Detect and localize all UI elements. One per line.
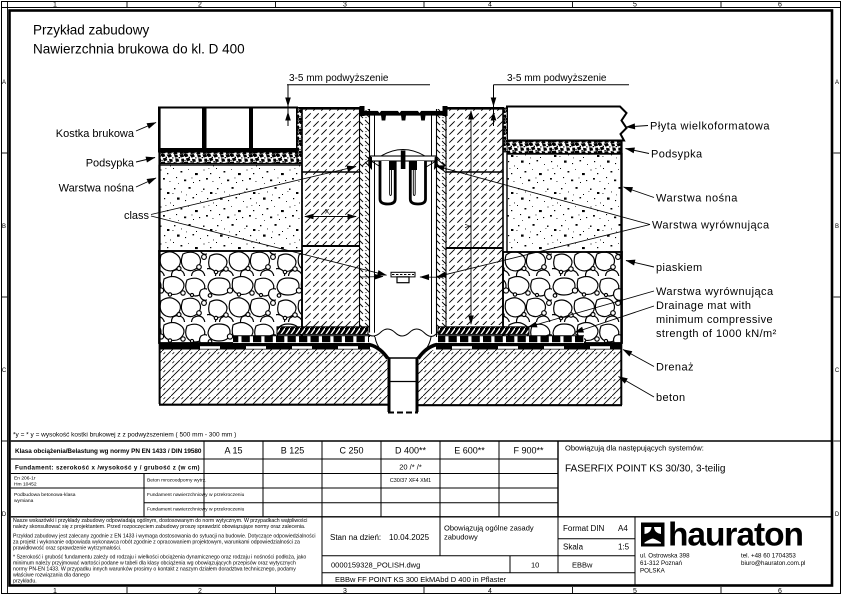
svg-text:A: A	[2, 80, 6, 86]
svg-text:D: D	[2, 512, 7, 518]
svg-text:EBBw: EBBw	[572, 561, 593, 570]
svg-text:5: 5	[633, 2, 637, 9]
svg-text:Drainage mat with: Drainage mat with	[656, 300, 751, 312]
svg-text:ul. Ostrowska 398: ul. Ostrowska 398	[640, 553, 690, 560]
svg-text:wymiana: wymiana	[14, 498, 34, 504]
svg-text:Obowiązują dla następujących s: Obowiązują dla następujących systemów:	[565, 444, 704, 453]
svg-text:hauraton: hauraton	[668, 517, 803, 554]
svg-text:D 400**: D 400**	[395, 446, 427, 456]
svg-text:3: 3	[343, 2, 347, 9]
svg-text:B: B	[2, 224, 6, 230]
svg-text:strength of 1000 kN/m²: strength of 1000 kN/m²	[656, 328, 777, 340]
svg-text:Klasa obciążenia/Belastung wg: Klasa obciążenia/Belastung wg normy PN E…	[15, 448, 202, 455]
svg-text:Drenaż: Drenaż	[656, 362, 694, 374]
svg-text:EBBw FF POINT KS 300 EkMAbd: EBBw FF POINT KS 300 EkMAbd D 400 in Pfl…	[335, 575, 507, 584]
svg-text:Warstwa nośna: Warstwa nośna	[59, 183, 135, 195]
svg-text:Hm 10452: Hm 10452	[14, 482, 37, 488]
svg-text:1:5: 1:5	[618, 543, 630, 552]
svg-text:A: A	[835, 80, 839, 86]
svg-text:3-5 mm podwyższenie: 3-5 mm podwyższenie	[289, 73, 389, 84]
svg-text:biuro@hauraton.com.pl: biuro@hauraton.com.pl	[741, 560, 805, 567]
svg-text:Podsypka: Podsypka	[651, 149, 703, 161]
svg-text:Beton mrozoodporny wytrz.: Beton mrozoodporny wytrz.	[147, 478, 207, 484]
svg-text:A4: A4	[618, 524, 628, 533]
svg-text:POLSKA: POLSKA	[640, 568, 666, 575]
svg-text:Stan na dzień:: Stan na dzień:	[330, 533, 381, 542]
svg-text:10.04.2025: 10.04.2025	[389, 533, 430, 542]
svg-text:C: C	[835, 368, 840, 374]
svg-text:3-5 mm podwyższenie: 3-5 mm podwyższenie	[507, 73, 607, 84]
svg-text:Fundament nawierzchniowy w prz: Fundament nawierzchniowy w przekroczeniu	[147, 492, 245, 498]
svg-text:class: class	[124, 210, 150, 222]
svg-text:Warstwa wyrównująca: Warstwa wyrównująca	[656, 286, 774, 298]
svg-text:Przykład zabudowy: Przykład zabudowy	[33, 23, 150, 38]
svg-text:C30/37 XF4 XM1: C30/37 XF4 XM1	[390, 478, 431, 484]
svg-text:Nawierzchnia brukowa do kl. D: Nawierzchnia brukowa do kl. D 400	[33, 42, 245, 57]
svg-text:E 600**: E 600**	[454, 446, 485, 456]
svg-text:1: 1	[53, 2, 57, 9]
svg-text:10: 10	[531, 561, 539, 570]
svg-text:Płyta wielkoformatowa: Płyta wielkoformatowa	[650, 121, 770, 133]
svg-text:Warstwa nośna: Warstwa nośna	[656, 193, 738, 205]
svg-text:B: B	[835, 224, 839, 230]
svg-text:minimum compressive: minimum compressive	[656, 314, 773, 326]
svg-text:piaskiem: piaskiem	[656, 262, 703, 274]
svg-text:61-312 Poznań: 61-312 Poznań	[640, 560, 683, 567]
svg-text:należy skonsultować się z proj: należy skonsultować się z projektantem. …	[13, 524, 305, 530]
svg-text:6: 6	[778, 2, 782, 9]
svg-text:5: 5	[633, 588, 637, 595]
svg-text:4: 4	[488, 588, 492, 595]
svg-text:En 206-1r: En 206-1r	[14, 476, 36, 482]
svg-text:F 900**: F 900**	[513, 446, 544, 456]
svg-text:Podsypka: Podsypka	[86, 158, 135, 170]
svg-text:tel. +48 60 1704353: tel. +48 60 1704353	[741, 553, 796, 560]
svg-text:B 125: B 125	[281, 446, 305, 456]
svg-text:4: 4	[488, 2, 492, 9]
svg-text:przykładu.: przykładu.	[13, 579, 37, 585]
svg-text:zabudowy: zabudowy	[444, 533, 478, 542]
svg-text:Podbudowa betonowa-klasa: Podbudowa betonowa-klasa	[14, 492, 76, 498]
svg-text:beton: beton	[656, 392, 686, 404]
svg-text:FASERFIX POINT KS 30/30, 3-tei: FASERFIX POINT KS 30/30, 3-teilig	[565, 464, 725, 475]
svg-text:Kostka brukowa: Kostka brukowa	[56, 128, 135, 140]
svg-text:Format DIN: Format DIN	[563, 524, 605, 533]
svg-text:Fundament: szerokość x /wysoko: Fundament: szerokość x /wysokość y / gru…	[15, 465, 200, 472]
svg-text:Obowiązują ogólne zasady: Obowiązują ogólne zasady	[444, 524, 534, 533]
svg-text:Skala: Skala	[563, 543, 584, 552]
svg-text:prawidłowość oraz sprawdzenie: prawidłowość oraz sprawdzenie wytrzymało…	[13, 546, 121, 552]
svg-text:Fundament nawierzchniowy w prz: Fundament nawierzchniowy w przekroczeniu	[147, 507, 245, 513]
svg-text:C: C	[2, 368, 7, 374]
svg-text:2: 2	[198, 588, 202, 595]
svg-text:6: 6	[778, 588, 782, 595]
svg-text:20 /* /*: 20 /* /*	[399, 463, 422, 472]
svg-text:0000159328_POLISH.dwg: 0000159328_POLISH.dwg	[331, 561, 420, 570]
svg-text:*y = * y = wysokość kostki bru: *y = * y = wysokość kostki brukowej z z …	[13, 432, 236, 439]
svg-text:2: 2	[198, 2, 202, 9]
svg-text:3: 3	[343, 588, 347, 595]
svg-text:A 15: A 15	[224, 446, 242, 456]
svg-text:C 250: C 250	[339, 446, 363, 456]
svg-text:1: 1	[53, 588, 57, 595]
svg-text:D: D	[835, 512, 840, 518]
svg-text:Warstwa wyrównująca: Warstwa wyrównująca	[652, 220, 770, 232]
